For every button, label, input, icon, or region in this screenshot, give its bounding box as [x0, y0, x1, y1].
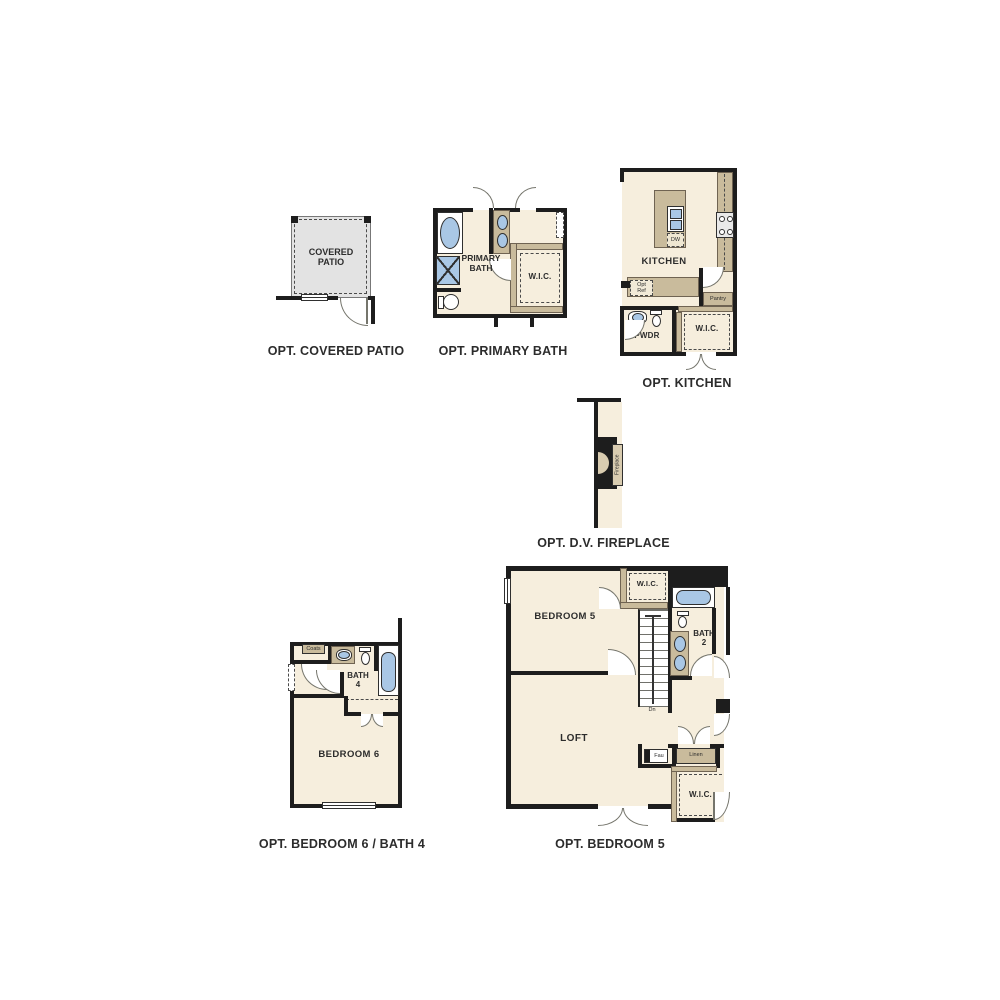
powder-room-label: PWDR: [624, 331, 670, 340]
wall: [620, 168, 624, 182]
plan-title: OPT. PRIMARY BATH: [430, 344, 576, 358]
wall: [368, 296, 375, 300]
bedroom-floor: [294, 646, 398, 804]
door-swing-arc: [473, 187, 494, 208]
door-swing-arc: [701, 354, 716, 370]
bath-floor: [435, 210, 565, 316]
door-swing-arc: [714, 714, 730, 736]
plan-primary-bath: W.I.C. PRIMARY BATH OPT. PRIMARY BATH: [0, 0, 1000, 1000]
wall: [672, 310, 676, 356]
wall: [433, 208, 473, 212]
wall: [716, 744, 720, 768]
wic-room-label: W.I.C.: [517, 272, 563, 281]
closet-wall: [676, 312, 682, 352]
sink-icon: [497, 215, 508, 230]
plan-kitchen: DW KITCHEN Opt Ref Pantry PWDR: [0, 0, 1000, 1000]
counter: [627, 277, 699, 297]
burner: [727, 229, 733, 235]
bath-room-label: BATH 2: [689, 629, 719, 647]
wall: [340, 672, 344, 698]
sink-basin: [670, 209, 682, 219]
door-swing-arc: [489, 259, 511, 281]
fireplace-label: Fireplace: [615, 455, 621, 476]
door-swing-arc: [678, 726, 694, 744]
patio-post: [364, 216, 371, 223]
bedroom5-floor: [510, 570, 724, 806]
counter-edge-line: [724, 174, 725, 270]
wall: [668, 676, 692, 680]
door-swing-arc: [714, 792, 730, 820]
wall: [328, 644, 332, 664]
plan-title: OPT. BEDROOM 5: [544, 837, 676, 851]
sink-basin: [670, 220, 682, 230]
wall: [677, 818, 715, 822]
fireplace-chase: [598, 437, 617, 444]
toilet-tank: [438, 296, 444, 309]
closet-wall: [671, 766, 717, 772]
fau-label: Fau: [650, 753, 668, 759]
plan-title: OPT. KITCHEN: [629, 376, 745, 390]
door-swing-arc: [686, 354, 701, 370]
wall: [290, 642, 294, 808]
wall: [620, 168, 737, 172]
window: [301, 294, 328, 301]
stairs: [638, 609, 668, 707]
bathtub-icon: [378, 645, 399, 696]
burner: [719, 229, 725, 235]
door-swing-arc: [694, 726, 710, 744]
opt-ref-box: [630, 280, 653, 296]
bath-room-label: BATH 4: [338, 671, 378, 689]
closet-wall: [671, 766, 677, 822]
closet-wall: [678, 306, 733, 312]
closet-shelf-line: [684, 314, 730, 350]
closet-wall: [510, 243, 517, 313]
closet-wall: [620, 568, 627, 609]
wall: [716, 699, 730, 713]
wall: [536, 208, 567, 212]
pantry-shelf: [703, 292, 733, 306]
plan-title: OPT. D.V. FIREPLACE: [535, 536, 672, 550]
bathtub-basin: [381, 652, 396, 692]
door-swing-arc: [598, 808, 623, 826]
toilet-bowl: [443, 294, 459, 310]
door-swing-arc: [608, 649, 636, 675]
sink-basin: [632, 313, 644, 322]
pantry-label: Pantry: [703, 296, 733, 302]
coats-closet: [302, 644, 325, 654]
wall-mass: [668, 566, 728, 587]
patio-room-label: COVERED PATIO: [292, 247, 370, 268]
plan-bedroom5: W.I.C. Dn BATH 2 BEDROOM 5 LOFT: [0, 0, 1000, 1000]
linen-label: Linen: [676, 752, 716, 758]
fau-closet: [644, 749, 668, 763]
wall: [699, 268, 703, 310]
wall: [506, 671, 608, 675]
toilet-tank: [650, 310, 662, 315]
wic-top-floor: [627, 571, 668, 602]
island-sink-icon: [667, 206, 684, 232]
door-leaf: [713, 792, 715, 820]
toilet-tank: [677, 611, 689, 616]
closet-wall: [510, 243, 563, 250]
patio-roof-line: [294, 219, 367, 294]
wall: [577, 398, 621, 402]
closet-shelf-line: [679, 774, 722, 816]
dishwasher-label: DW: [667, 237, 684, 243]
door-swing-arc: [690, 654, 712, 676]
closet-shelf-line: [520, 253, 560, 303]
wic-room-label: W.I.C.: [627, 580, 668, 589]
sink-icon: [674, 655, 686, 671]
opt-ref-label: Opt Ref: [630, 282, 653, 294]
stairs-dn-label: Dn: [642, 707, 662, 713]
dishwasher-box: [667, 233, 684, 247]
burner: [727, 216, 733, 222]
wic-floor: [682, 312, 733, 352]
wall: [668, 587, 672, 713]
floor-plan-options-sheet: COVERED PATIO OPT. COVERED PATIO: [0, 0, 1000, 1000]
wall: [672, 744, 676, 768]
door-swing-arc: [340, 298, 368, 326]
wall: [506, 804, 598, 809]
wall: [294, 660, 330, 664]
firebox: [598, 452, 609, 474]
toilet-icon: [677, 611, 689, 628]
fireplace-chase: [598, 437, 613, 489]
bathtub-basin: [440, 217, 460, 249]
door-leaf: [366, 298, 368, 324]
corner-fill: [722, 172, 737, 185]
wic-room-label: W.I.C.: [677, 790, 724, 799]
plan-bedroom6-bath4: Coats BATH 4 BEDROOM 6 OPT. BEDROOM 6 / …: [0, 0, 1000, 1000]
cooktop-icon: [716, 212, 734, 238]
wall: [594, 402, 598, 528]
door-swing-arc: [625, 320, 645, 340]
wall: [383, 712, 398, 716]
window: [504, 578, 511, 604]
wall: [489, 208, 493, 254]
toilet-icon: [438, 294, 460, 312]
sink-icon: [628, 311, 647, 324]
toilet-tank: [359, 647, 371, 652]
wall: [433, 314, 567, 318]
door-swing-arc: [316, 670, 340, 694]
wic-room-label: W.I.C.: [682, 324, 732, 333]
sink-icon: [497, 233, 508, 248]
wall: [620, 306, 624, 356]
kitchen-room-label: KITCHEN: [634, 257, 694, 268]
wall: [668, 744, 678, 748]
plan-dv-fireplace: Fireplace OPT. D.V. FIREPLACE: [0, 0, 1000, 1000]
door-swing-arc: [703, 267, 724, 288]
toilet-bowl: [652, 315, 661, 327]
wall: [712, 608, 716, 654]
door-swing-arc: [372, 714, 383, 727]
wall: [716, 352, 737, 356]
closet-wall: [510, 306, 563, 313]
double-vanity: [670, 631, 689, 676]
wall: [530, 318, 534, 327]
door-swing-arc: [623, 808, 648, 826]
bath-room-label: PRIMARY BATH: [452, 254, 510, 274]
wall: [563, 208, 567, 318]
bathtub-icon: [437, 212, 463, 254]
wall: [638, 744, 642, 768]
wall: [638, 764, 672, 768]
plan-covered-patio: COVERED PATIO OPT. COVERED PATIO: [0, 0, 1000, 1000]
wall: [506, 566, 723, 571]
optional-opening: [288, 664, 295, 691]
water-heater-strip: [645, 750, 650, 762]
bathtub-icon: [672, 587, 715, 608]
window: [322, 802, 376, 809]
stair-rail-tick: [645, 615, 661, 617]
wall: [494, 208, 520, 212]
plan-title: OPT. BEDROOM 6 / BATH 4: [254, 837, 430, 851]
coats-label: Coats: [302, 646, 325, 652]
sink-basin: [338, 651, 350, 659]
wall: [710, 744, 724, 748]
toilet-icon: [650, 310, 664, 328]
toilet-icon: [359, 647, 372, 665]
linen-shelf: [556, 212, 564, 238]
patio-area: [291, 216, 371, 298]
door-swing-arc: [599, 587, 621, 609]
wall: [433, 288, 461, 292]
fireplace-icon: Fireplace: [612, 444, 623, 486]
wall: [433, 208, 437, 318]
linen-closet: [676, 748, 716, 764]
wall: [620, 306, 678, 310]
wall: [620, 352, 686, 356]
wall: [726, 587, 730, 655]
wall: [733, 168, 737, 356]
wall: [398, 642, 402, 808]
closet-shelf-line: [629, 573, 666, 600]
sink-icon: [336, 649, 352, 661]
kitchen-island: [654, 190, 686, 248]
patio-post: [291, 216, 298, 223]
shower-icon: [436, 256, 460, 285]
bedroom-room-label: BEDROOM 6: [314, 750, 384, 761]
wall: [494, 318, 498, 327]
wall: [621, 281, 630, 288]
closet-wall: [620, 602, 668, 609]
kitchen-floor: [622, 172, 733, 352]
fireplace-chase: [598, 482, 617, 489]
wall: [290, 804, 402, 808]
double-vanity: [493, 210, 510, 254]
plan-title: OPT. COVERED PATIO: [258, 344, 414, 358]
wall: [344, 712, 361, 716]
wall: [290, 642, 402, 646]
toilet-bowl: [361, 652, 370, 665]
bathtub-basin: [676, 590, 711, 605]
counter: [717, 172, 733, 272]
wall: [648, 804, 676, 809]
sink-icon: [674, 636, 686, 652]
door-swing-arc: [361, 714, 372, 727]
wall: [276, 296, 338, 300]
closet-shelf-line: [346, 699, 398, 702]
door-swing-arc: [515, 187, 536, 208]
wall: [294, 694, 344, 698]
wall: [398, 618, 402, 644]
wall: [374, 645, 378, 671]
door-swing-arc: [301, 664, 327, 690]
wall: [506, 566, 511, 808]
bedroom-room-label: BEDROOM 5: [528, 612, 602, 623]
loft-room-label: LOFT: [550, 733, 598, 745]
door-swing-arc: [714, 656, 730, 678]
wic-floor: [517, 250, 563, 306]
wic-floor: [671, 766, 724, 822]
wall: [344, 696, 348, 716]
fireplace-wall-strip: [598, 402, 622, 528]
vanity: [331, 646, 355, 664]
toilet-bowl: [678, 616, 687, 628]
burner: [719, 216, 725, 222]
wall: [371, 296, 375, 324]
stair-rail: [652, 616, 654, 704]
